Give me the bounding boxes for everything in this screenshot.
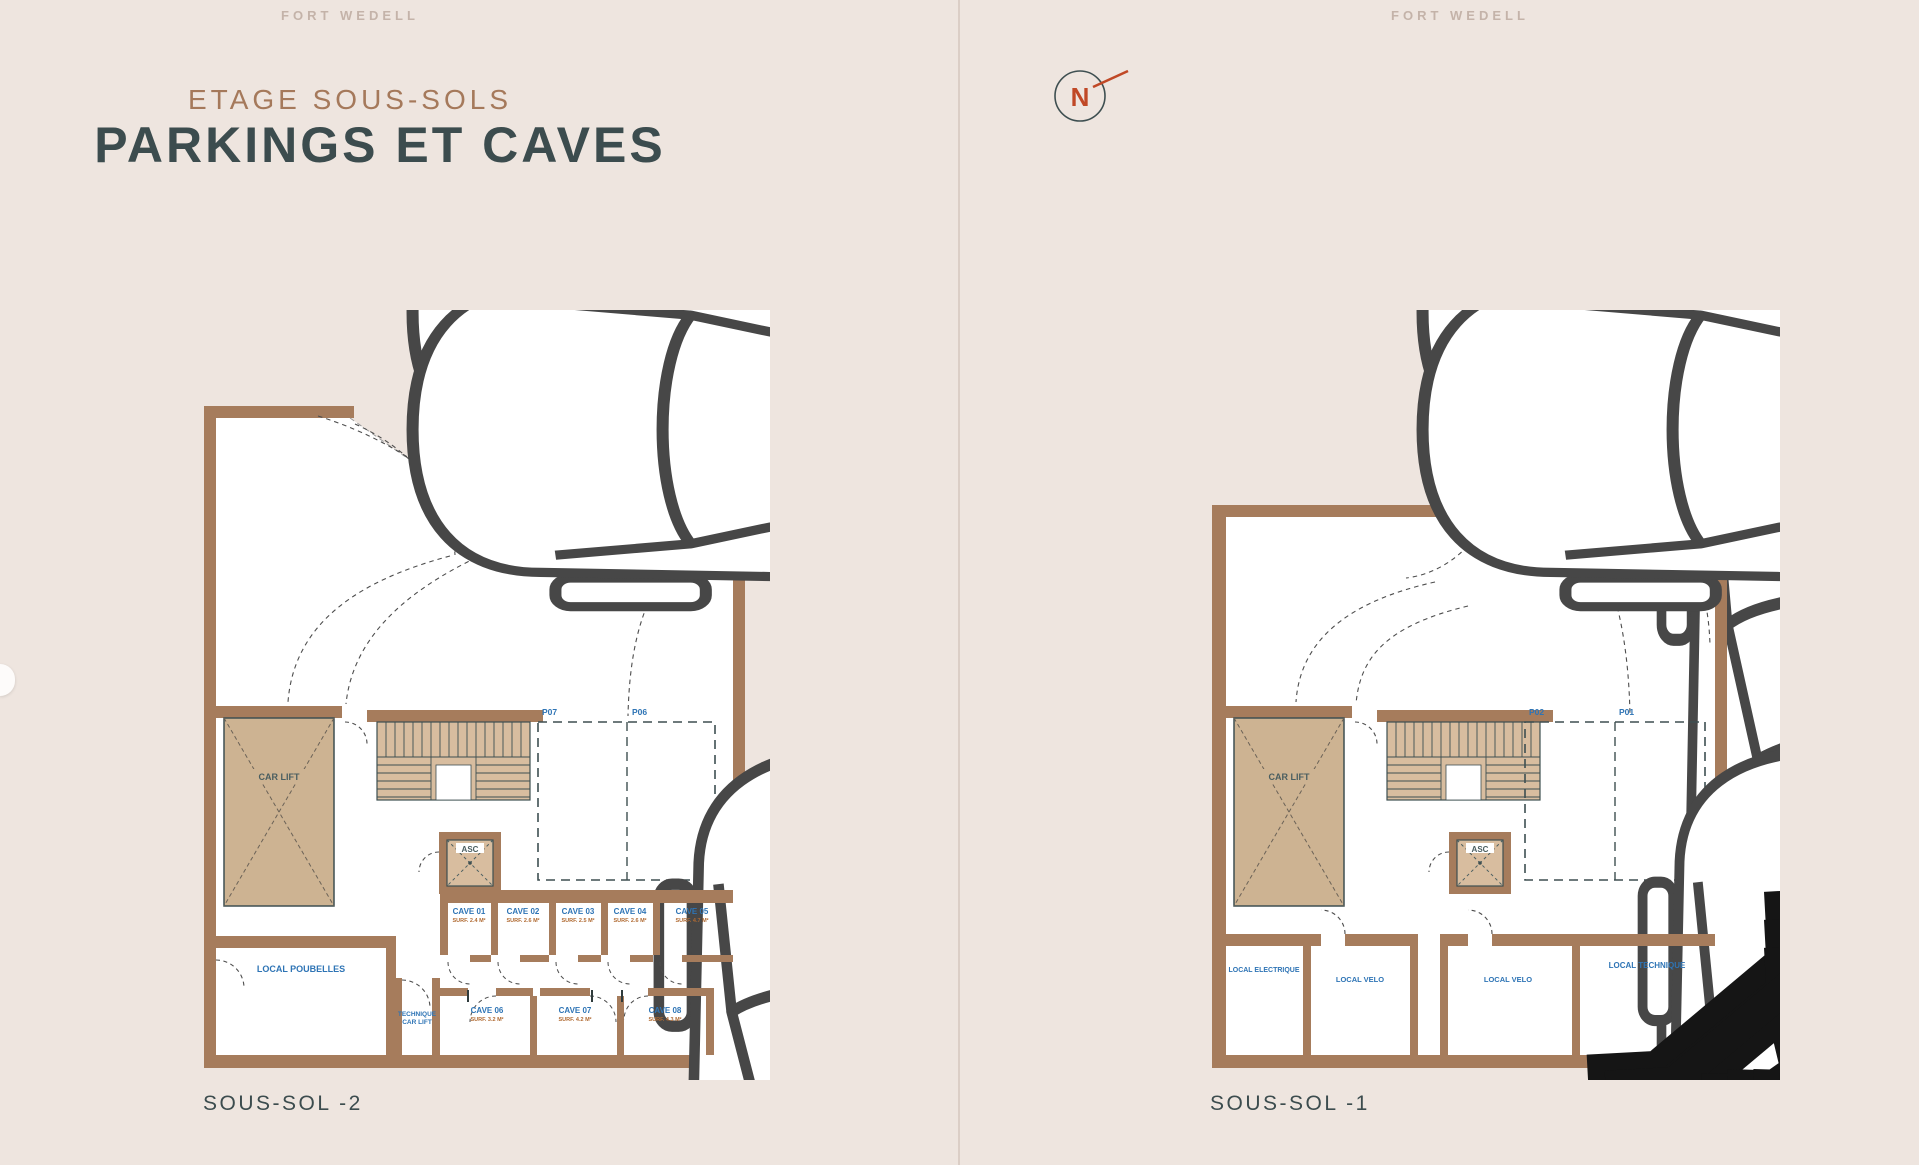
poubelles-label: LOCAL POUBELLES [257,964,345,974]
floorplan-sous-sol-2: PARKLIFT PARKLIFT PARKLIFT P08-9 P10-11 … [190,310,770,1080]
technique-label-line2: CAR LIFT [402,1019,432,1026]
cave-06-surface: SURF. 3.2 M² [470,1016,503,1023]
brand-header-left: FORT WEDELL [0,8,700,23]
cave-05-surface: SURF. 4.7 M² [675,917,708,924]
cave-02-surface: SURF. 2.6 M² [506,917,539,924]
page: { "page": { "brand_left": "FORT WEDELL",… [0,0,1919,1165]
cave-08-name: CAVE 08 [649,1006,682,1015]
cave-01-name: CAVE 01 [453,907,486,916]
north-letter: N [1071,82,1090,112]
brand-header-right: FORT WEDELL [1110,8,1810,23]
page-title: PARKINGS ET CAVES [0,116,760,174]
page-divider [958,0,960,1165]
plan-sous-sol-2-drawing: PARKLIFT PARKLIFT PARKLIFT P08-9 P10-11 … [204,310,770,1080]
carlift-label: CAR LIFT [1269,772,1310,782]
cave-04-surface: SURF. 2.6 M² [613,917,646,924]
electrique-label: LOCAL ELECTRIQUE [1228,967,1299,974]
cave-08-surface: SURF. 4.3 M² [648,1016,681,1023]
cave-01-surface: SURF. 2.4 M² [452,917,485,924]
carousel-prev-button[interactable] [0,664,15,696]
cave-04-name: CAVE 04 [614,907,647,916]
asc-label: ASC [462,845,479,854]
velo2-label: LOCAL VELO [1484,975,1532,984]
caption-sous-sol-1: SOUS-SOL -1 [1210,1092,1370,1116]
spot-label-p01: P01 [1619,707,1634,717]
cave-07-name: CAVE 07 [559,1006,592,1015]
technique-label: LOCAL TECHNIQUE [1609,961,1686,970]
page-subtitle: ETAGE SOUS-SOLS [0,84,700,116]
cave-07-surface: SURF. 4.2 M² [558,1016,591,1023]
cave-06-name: CAVE 06 [471,1006,504,1015]
spot-label-p02: P02 [1529,707,1544,717]
spot-label-p07: P07 [542,707,557,717]
cave-02-name: CAVE 02 [507,907,540,916]
cave-05-name: CAVE 05 [676,907,709,916]
spot-label-p06: P06 [632,707,647,717]
north-arrow: N [1046,58,1146,132]
carlift-label: CAR LIFT [259,772,300,782]
caption-sous-sol-2: SOUS-SOL -2 [203,1092,363,1116]
floorplan-sous-sol-1: P03 P04 P05 CAR LIFT ASC [1200,310,1780,1080]
technique-label-line1: TECHNIQUE [398,1011,437,1018]
cave-03-surface: SURF. 2.5 M² [561,917,594,924]
velo1-label: LOCAL VELO [1336,975,1384,984]
plan-sous-sol-1-drawing: P03 P04 P05 CAR LIFT ASC [1200,310,1780,1080]
cave-03-name: CAVE 03 [562,907,595,916]
asc-label: ASC [1472,845,1489,854]
